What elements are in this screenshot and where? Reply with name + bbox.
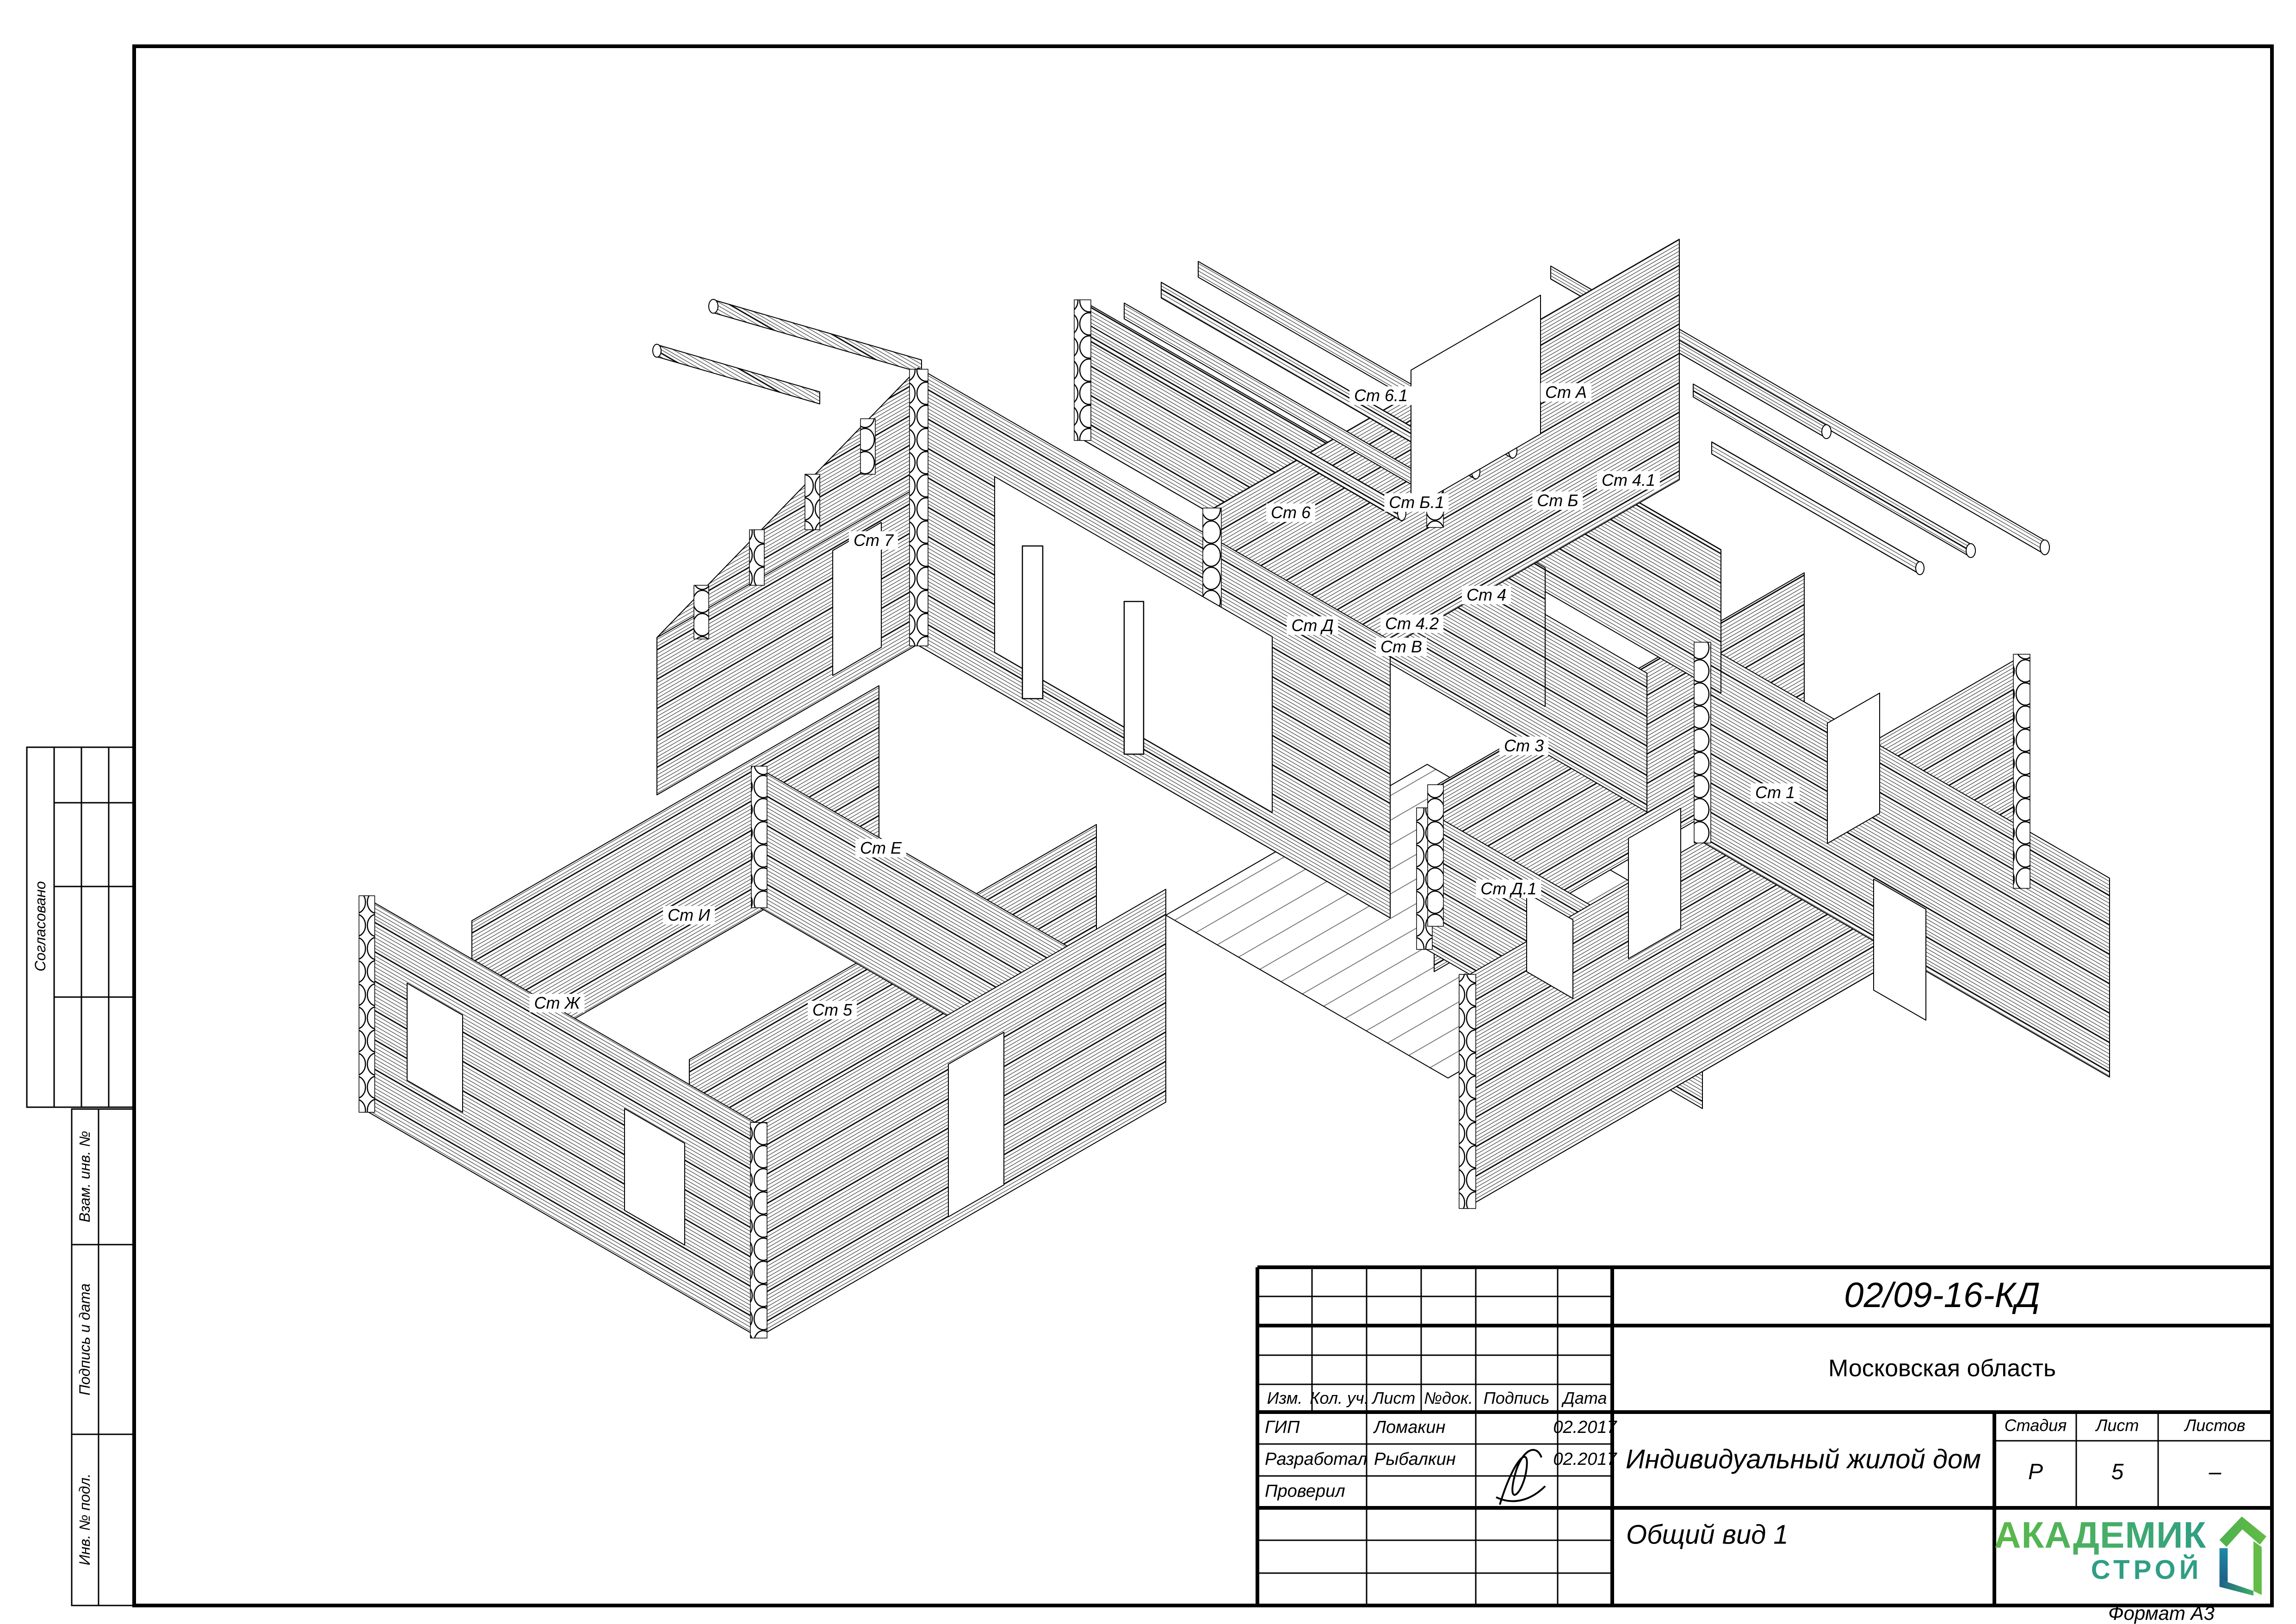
wall-label: Ст А bbox=[1541, 383, 1591, 402]
stage-value: Р bbox=[2028, 1461, 2043, 1484]
doc-number: 02/09-16-КД bbox=[1844, 1277, 2040, 1314]
row-name: Ломакин bbox=[1374, 1419, 1445, 1437]
wall-label: Ст И bbox=[663, 906, 715, 924]
object-title: Индивидуальный жилой дом bbox=[1626, 1446, 1981, 1474]
row-date: 02.2017 bbox=[1553, 1419, 1616, 1437]
wall-label: Ст В bbox=[1376, 638, 1427, 656]
wall-label: Ст Б bbox=[1532, 491, 1583, 510]
wall-label: Ст Е bbox=[855, 839, 906, 857]
wall-label: Ст 7 bbox=[849, 531, 898, 550]
col-kol: Кол. уч. bbox=[1310, 1389, 1368, 1407]
format-note: Формат А3 bbox=[2108, 1603, 2215, 1624]
row-role: ГИП bbox=[1265, 1419, 1300, 1437]
logo-wordmark-line2: СТРОЙ bbox=[2091, 1556, 2203, 1585]
wall-label: Ст Ж bbox=[530, 994, 585, 1012]
wall-label: Ст 4.1 bbox=[1597, 471, 1660, 490]
stage-label: Стадия bbox=[2005, 1417, 2067, 1434]
wall-label: Ст 6 bbox=[1266, 503, 1315, 522]
col-podpis: Подпись bbox=[1484, 1389, 1550, 1407]
approved-label: Согласовано bbox=[33, 881, 49, 971]
wall-label: Ст 4.2 bbox=[1380, 614, 1443, 633]
log-house-drawing bbox=[359, 239, 2110, 1338]
col-data: Дата bbox=[1563, 1389, 1607, 1407]
logo-house-icon bbox=[2198, 1513, 2269, 1596]
signature-scribble bbox=[1496, 1450, 1545, 1505]
wall-label: Ст Д.1 bbox=[1476, 880, 1541, 898]
logo-wordmark-line1: АКАДЕМИК bbox=[1994, 1516, 2207, 1555]
region-title: Московская область bbox=[1828, 1356, 2056, 1382]
wall-label: Ст 1 bbox=[1751, 783, 1800, 802]
sheets-total-label: Листов bbox=[2185, 1417, 2245, 1434]
sheet-no-value: 5 bbox=[2111, 1461, 2124, 1484]
col-list: Лист bbox=[1373, 1389, 1416, 1407]
wall-label: Ст 5 bbox=[808, 1001, 857, 1019]
wall-label: Ст Б.1 bbox=[1384, 493, 1448, 512]
wall-label: Ст 6.1 bbox=[1349, 386, 1412, 405]
row-date: 02.2017 bbox=[1553, 1450, 1616, 1469]
stamp-label-inv: Инв. № подл. bbox=[77, 1474, 93, 1566]
stamp-label-podpis-data: Подпись и дата bbox=[77, 1283, 93, 1395]
sheets-total-value: – bbox=[2209, 1461, 2222, 1484]
row-role: Разработал bbox=[1265, 1450, 1367, 1469]
col-izm: Изм. bbox=[1267, 1389, 1303, 1407]
row-role: Проверил bbox=[1265, 1482, 1345, 1501]
row-name: Рыбалкин bbox=[1374, 1450, 1456, 1469]
col-ndok: №док. bbox=[1424, 1389, 1473, 1407]
wall-label: Ст 4 bbox=[1462, 586, 1511, 604]
view-title: Общий вид 1 bbox=[1626, 1521, 1789, 1550]
drawing-sheet: Согласовано Взам. инв. № Подпись и дата … bbox=[0, 0, 2296, 1624]
wall-label: Ст Д bbox=[1287, 616, 1338, 635]
stamp-label-vzam: Взам. инв. № bbox=[77, 1131, 93, 1222]
wall-label: Ст 3 bbox=[1499, 737, 1548, 755]
sheet-no-label: Лист bbox=[2096, 1417, 2139, 1434]
